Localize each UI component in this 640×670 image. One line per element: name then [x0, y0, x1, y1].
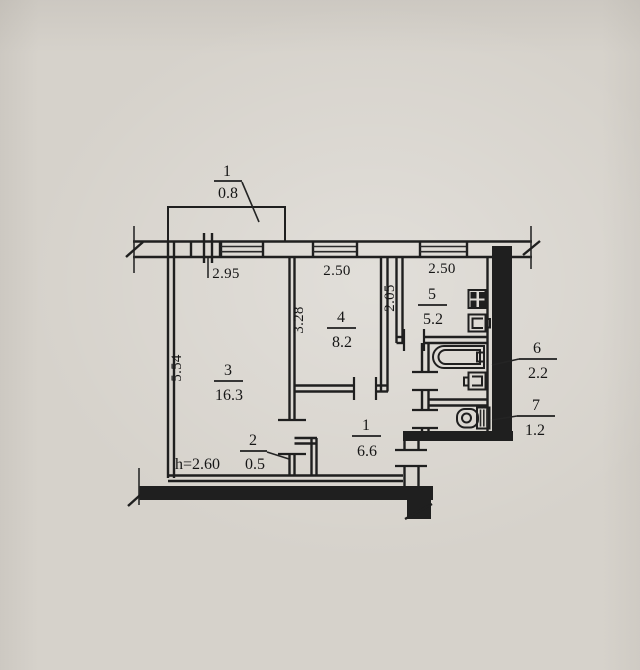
bath-toilet-divider: [429, 400, 488, 406]
dim-living-width: 2.95: [212, 266, 239, 282]
washbasin-icon: [464, 373, 486, 390]
ceiling-height-note: h=2.60: [175, 456, 220, 473]
bedroom-area: 8.2: [332, 334, 352, 351]
hallway-area: 6.6: [357, 443, 377, 460]
dim-living-depth: 5.54: [169, 354, 185, 382]
toilet-bottom-wall: [403, 431, 513, 441]
dim-bedroom-width: 2.50: [323, 263, 350, 279]
bedroom-number: 4: [337, 309, 345, 326]
floor-plan-drawing: 1 0.8 2.95 2.50 2.50 5.54 3.28 2.05 h=2.…: [0, 0, 640, 670]
balcony-outline: [168, 207, 285, 241]
dim-kitchen-depth: 2.05: [382, 284, 398, 311]
bathroom-area: 2.2: [528, 365, 548, 382]
dim-kitchen-width: 2.50: [428, 261, 455, 277]
toilet-icon: [457, 408, 490, 429]
balcony-area: 0.8: [218, 185, 238, 202]
toilet-area: 1.2: [525, 422, 545, 439]
window-bedroom: [313, 242, 357, 258]
living-room-area: 16.3: [215, 387, 243, 404]
kitchen-label: 5 5.2: [418, 286, 447, 328]
bottom-exterior-wall: [128, 468, 433, 519]
hallway-number: 1: [362, 417, 370, 434]
bedroom-label: 4 8.2: [327, 309, 356, 351]
hallway-label: 1 6.6: [352, 417, 381, 460]
stove-icon: [469, 290, 486, 308]
living-room-number: 3: [224, 362, 232, 379]
entrance-wall: [395, 441, 427, 486]
balcony-leader-line: [242, 182, 259, 222]
bathtub-icon: [433, 346, 484, 368]
kitchen-number: 5: [428, 286, 436, 303]
living-room-label: 3 16.3: [214, 362, 243, 404]
bedroom-right-wall: [381, 257, 388, 392]
window-living-room: [221, 242, 263, 258]
closet-label: 2 0.5: [240, 432, 289, 473]
floor-plan-scan: 1 0.8 2.95 2.50 2.50 5.54 3.28 2.05 h=2.…: [0, 0, 640, 670]
closet-area: 0.5: [245, 456, 265, 473]
dim-bedroom-depth: 3.28: [291, 306, 307, 333]
bathroom-number: 6: [533, 340, 541, 357]
bathroom-left-wall: [412, 343, 438, 432]
closet-number: 2: [249, 432, 257, 449]
toilet-number: 7: [532, 397, 540, 414]
balcony-label: 1 0.8: [214, 163, 259, 222]
bedroom-bottom-wall: [295, 377, 389, 400]
window-kitchen: [420, 242, 467, 258]
closet-walls: [295, 438, 318, 476]
kitchen-area: 5.2: [423, 311, 443, 328]
balcony-number: 1: [223, 163, 231, 180]
